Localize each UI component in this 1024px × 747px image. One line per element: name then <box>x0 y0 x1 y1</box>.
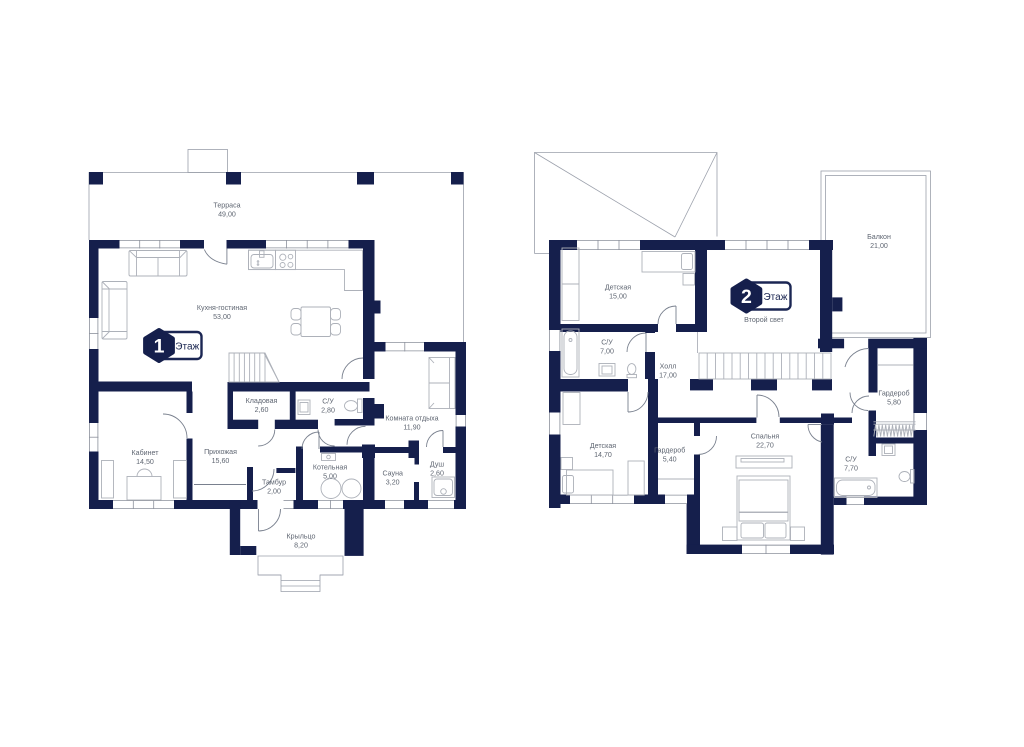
svg-text:2,00: 2,00 <box>267 487 281 495</box>
svg-text:2,80: 2,80 <box>321 406 335 414</box>
svg-text:Холл: Холл <box>660 363 677 371</box>
svg-text:Этаж: Этаж <box>175 341 199 352</box>
svg-text:Гардероб: Гардероб <box>654 447 685 455</box>
svg-text:Гардероб: Гардероб <box>878 390 909 398</box>
svg-text:11,90: 11,90 <box>403 423 420 431</box>
svg-text:Детская: Детская <box>605 284 631 292</box>
svg-text:14,70: 14,70 <box>594 451 612 459</box>
svg-text:Душ: Душ <box>430 461 445 469</box>
svg-text:Кухня-гостиная: Кухня-гостиная <box>197 304 247 312</box>
svg-text:15,00: 15,00 <box>609 292 627 300</box>
svg-text:22,70: 22,70 <box>756 441 774 449</box>
svg-text:17,00: 17,00 <box>659 371 677 379</box>
svg-text:С/У: С/У <box>322 398 334 406</box>
svg-text:7,70: 7,70 <box>844 464 858 472</box>
svg-text:7,00: 7,00 <box>600 347 614 355</box>
svg-text:Комната отдыха: Комната отдыха <box>385 415 438 423</box>
svg-text:С/У: С/У <box>845 456 857 464</box>
svg-text:Этаж: Этаж <box>763 292 787 303</box>
svg-text:53,00: 53,00 <box>213 313 231 321</box>
svg-text:3,20: 3,20 <box>386 478 400 486</box>
svg-text:15,60: 15,60 <box>212 457 230 465</box>
svg-text:Детская: Детская <box>590 442 616 450</box>
svg-text:Терраса: Терраса <box>213 202 240 210</box>
svg-text:С/У: С/У <box>601 339 613 347</box>
svg-text:Спальня: Спальня <box>751 433 780 441</box>
svg-text:Тамбур: Тамбур <box>262 479 286 487</box>
svg-text:1: 1 <box>154 336 165 358</box>
svg-text:2: 2 <box>741 286 752 308</box>
svg-text:2,60: 2,60 <box>255 406 269 414</box>
svg-text:Кладовая: Кладовая <box>246 397 278 405</box>
svg-text:Сауна: Сауна <box>382 470 403 478</box>
svg-text:Балкон: Балкон <box>867 233 891 241</box>
svg-text:Котельная: Котельная <box>313 464 347 472</box>
svg-text:2,60: 2,60 <box>430 469 444 477</box>
svg-text:14,50: 14,50 <box>136 458 154 466</box>
svg-text:Прихожая: Прихожая <box>204 448 237 456</box>
svg-text:Второй свет: Второй свет <box>744 316 784 324</box>
svg-text:Крыльцо: Крыльцо <box>287 533 316 541</box>
svg-text:8,20: 8,20 <box>294 541 308 549</box>
svg-text:5,80: 5,80 <box>887 398 901 406</box>
svg-text:5,40: 5,40 <box>663 455 677 463</box>
svg-text:21,00: 21,00 <box>870 242 888 250</box>
svg-text:49,00: 49,00 <box>218 210 236 218</box>
svg-text:Кабинет: Кабинет <box>132 449 160 457</box>
svg-text:5,00: 5,00 <box>323 472 337 480</box>
